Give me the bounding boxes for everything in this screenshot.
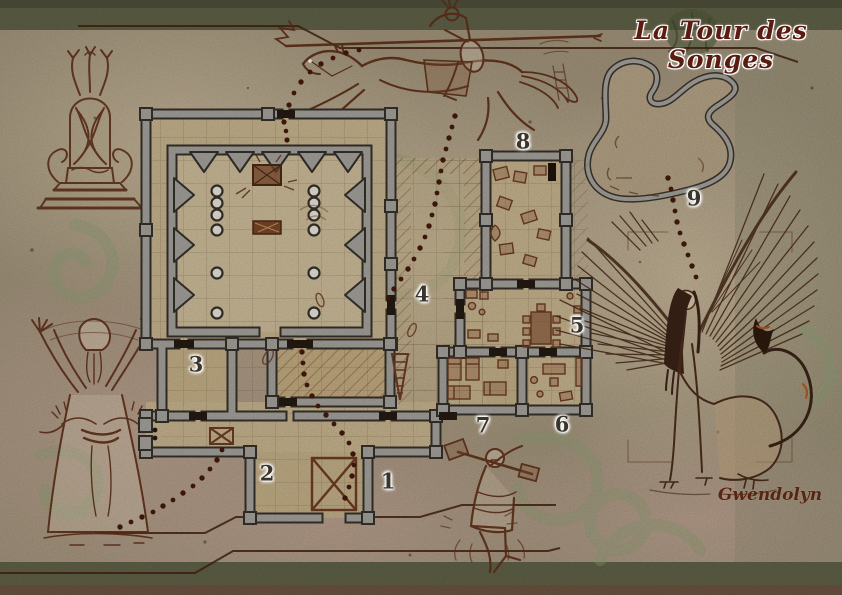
fantasy-map-page: 1 2 3 4 5 6 7 8 9 La Tour des Songes Gwe… — [0, 0, 842, 595]
room-label-1: 1 — [381, 469, 396, 494]
room-label-6: 6 — [555, 412, 570, 437]
room-label-9: 9 — [687, 186, 702, 211]
room-label-8: 8 — [516, 129, 531, 154]
room-label-4: 4 — [415, 282, 430, 307]
room-label-7: 7 — [476, 413, 491, 438]
map-title: La Tour des Songes — [604, 16, 838, 74]
room-label-3: 3 — [189, 352, 204, 377]
character-signature: Gwendolyn — [698, 485, 842, 505]
room-label-2: 2 — [260, 461, 275, 486]
room-label-5: 5 — [570, 313, 585, 338]
